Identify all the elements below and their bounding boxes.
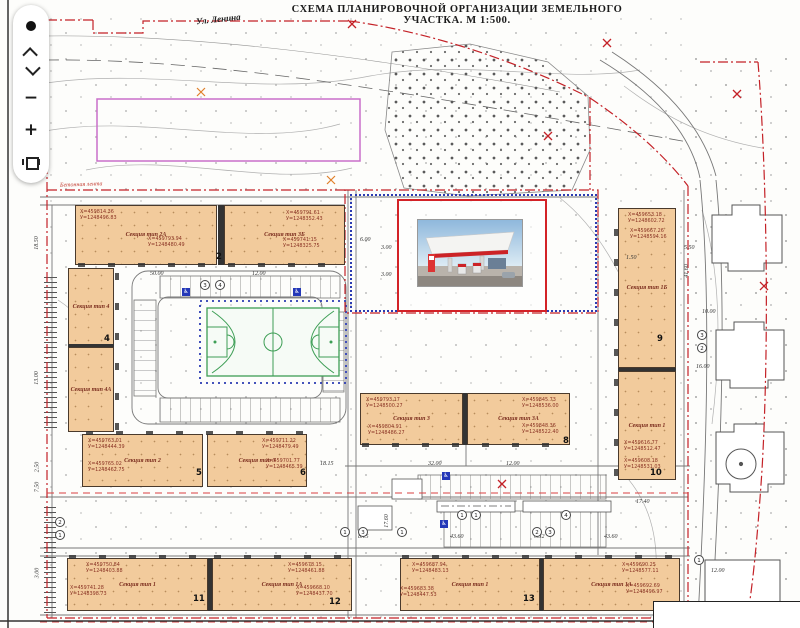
building-label: Секция тип 4 <box>73 304 110 310</box>
wheelchair-icon: ♿ <box>293 288 301 296</box>
building-joint <box>540 558 543 611</box>
coord-label: Х=459804.91У=1248486.27 <box>368 424 405 436</box>
drawing-title: СХЕМА ПЛАНИРОВОЧНОЙ ОРГАНИЗАЦИИ ЗЕМЕЛЬНО… <box>262 4 652 26</box>
coord-label: Х=459750.84У=1248403.88 <box>86 562 123 574</box>
circled-number: 3 <box>358 527 368 537</box>
wheelchair-icon: ♿ <box>440 520 448 528</box>
circled-number: 2 <box>55 517 65 527</box>
building-label: Секция тип 1 <box>629 423 666 429</box>
dimension-label: 12.00 <box>506 461 520 467</box>
dimension-label: 1.50 <box>626 255 637 261</box>
coord-label: Х=459741.28У=1248398.73 <box>70 585 107 597</box>
building-joint <box>208 558 212 611</box>
dimension-label: 17.40 <box>636 499 650 505</box>
building-label: Секция тип 2 <box>124 458 161 464</box>
coord-label: Х=459668.10У=1248437.70 <box>296 585 333 597</box>
basketball-court <box>200 301 346 383</box>
coord-label: Х=459793.94У=1248480.49 <box>148 236 185 248</box>
dimension-label: 5.50 <box>684 245 695 251</box>
print-button[interactable] <box>18 150 44 174</box>
gas-station-photo <box>417 219 523 287</box>
coord-label: Х=459653.18У=1248602.72 <box>628 212 665 224</box>
circled-number: 2 <box>532 527 542 537</box>
marker-dot-icon <box>26 21 36 31</box>
dimension-label: 12.00 <box>252 271 266 277</box>
building-label: Секция тип 3 <box>393 416 430 422</box>
dimension-label: 10.00 <box>702 309 716 315</box>
dimension-label: 6.00 <box>360 237 371 243</box>
viewer-toolbar: − + <box>13 5 49 183</box>
coord-label: Х=459616.77У=1248512.47 <box>624 440 661 452</box>
circled-number: 3 <box>545 527 555 537</box>
blank-cover-box <box>653 601 800 628</box>
coord-label: Х=459793.17У=1248500.27 <box>366 397 403 409</box>
plan-number: 13 <box>523 594 535 604</box>
coord-label: Х=459711.22У=1248479.49 <box>262 438 299 450</box>
dimension-label: 7.50 <box>34 482 40 493</box>
dimension-label: 13.00 <box>34 371 40 385</box>
building-label: Секция тип 3А <box>498 416 539 422</box>
coord-label: Х=459848.36У=1248522.40 <box>522 423 559 435</box>
plan-number: 8 <box>563 436 569 446</box>
building-label: Секция тип 1 <box>452 582 489 588</box>
circled-number: 1 <box>397 527 407 537</box>
plan-number: 2 <box>216 252 222 262</box>
zoom-in-button[interactable]: + <box>18 119 44 143</box>
print-icon <box>22 155 40 169</box>
building-section: Секция тип 3Б <box>224 205 345 265</box>
plan-number: 6 <box>300 468 306 478</box>
pan-down-button[interactable] <box>18 61 44 77</box>
dimension-label: 3.00 <box>381 245 392 251</box>
chevron-down-icon <box>25 60 41 76</box>
circled-number: 3 <box>697 330 707 340</box>
coord-label: Х=459683.38У=1248447.53 <box>400 586 437 598</box>
coord-label: Х=459791.61У=1248352.43 <box>286 210 323 222</box>
chevron-up-icon <box>22 47 38 63</box>
marker-dot-button[interactable] <box>18 14 44 38</box>
entrance-marks <box>614 212 618 476</box>
building-label: Секция тип 4А <box>71 387 112 393</box>
entrance-marks <box>402 555 538 559</box>
building-joint <box>618 368 676 371</box>
entrance-marks <box>545 555 678 559</box>
coord-label: Х=459687.94У=1248483.13 <box>412 562 449 574</box>
coord-label: Х=459690.25У=1248577.11 <box>622 562 659 574</box>
entrance-marks <box>69 555 208 559</box>
wheelchair-icon: ♿ <box>442 472 450 480</box>
entrance-marks <box>214 555 350 559</box>
circled-number: 1 <box>471 510 481 520</box>
pan-up-button[interactable] <box>18 46 44 62</box>
dimension-label: 50.00 <box>150 271 164 277</box>
dimension-label: 16.00 <box>696 364 710 370</box>
dimension-label: 43.60 <box>604 534 618 540</box>
building-joint <box>463 393 467 445</box>
plan-number: 9 <box>657 334 663 344</box>
entrance-marks <box>78 263 343 267</box>
building-joint <box>68 344 114 347</box>
dimension-label: 17.60 <box>384 514 390 528</box>
entrance-marks <box>115 272 119 430</box>
wheelchair-icon: ♿ <box>182 288 190 296</box>
coord-label: Х=459692.69У=1248496.97 <box>626 583 663 595</box>
circled-number: 3 <box>200 280 210 290</box>
coord-label: Х=459741.15У=1248325.75 <box>283 237 320 249</box>
plan-number: 4 <box>104 334 110 344</box>
dimension-label: 32.00 <box>428 461 442 467</box>
coord-label: Х=459845.73У=1248536.00 <box>522 397 559 409</box>
circled-number: 1 <box>340 527 350 537</box>
plan-number: 11 <box>193 594 205 604</box>
dimension-label: 18.15 <box>320 461 334 467</box>
coord-label: Х=459667.26У=1248594.16 <box>630 228 667 240</box>
circled-number: 4 <box>215 280 225 290</box>
circled-number: 1 <box>694 555 704 565</box>
plan-number: 12 <box>329 597 341 607</box>
coord-label: Х=459763.01У=1248444.39 <box>88 438 125 450</box>
circled-number: 2 <box>697 343 707 353</box>
circled-number: 4 <box>561 510 571 520</box>
plan-number: 5 <box>196 468 202 478</box>
building-label: Секция тип 1 <box>119 582 156 588</box>
building-section: Секция тип 4А <box>68 347 114 432</box>
dimension-label: 3.00 <box>381 272 392 278</box>
dimension-label: 41.60 <box>684 264 690 278</box>
coord-label: Х=459678.15У=1248461.88 <box>288 562 325 574</box>
coord-label: Х=459814.36У=1248496.83 <box>80 209 117 221</box>
dimension-label: 18.50 <box>34 236 40 250</box>
circled-number: 1 <box>55 530 65 540</box>
dimension-label: 43.60 <box>450 534 464 540</box>
dimension-label: 12.00 <box>711 568 725 574</box>
retaining-wall <box>44 276 57 428</box>
circled-number: 1 <box>457 510 467 520</box>
entrance-marks <box>86 431 304 435</box>
entrance-marks <box>362 443 568 447</box>
dimension-label: 3.00 <box>34 568 40 579</box>
coord-label: Х=459765.02У=1248462.75 <box>88 461 125 473</box>
zoom-out-button[interactable]: − <box>18 87 44 111</box>
site-plan-viewer[interactable]: СХЕМА ПЛАНИРОВОЧНОЙ ОРГАНИЗАЦИИ ЗЕМЕЛЬНО… <box>0 0 800 628</box>
coord-label: Х=459701.77У=1248465.39 <box>266 458 303 470</box>
plan-number: 10 <box>650 468 662 478</box>
dimension-label: 2.50 <box>34 462 40 473</box>
building-label: Секция тип 1Б <box>627 285 668 291</box>
